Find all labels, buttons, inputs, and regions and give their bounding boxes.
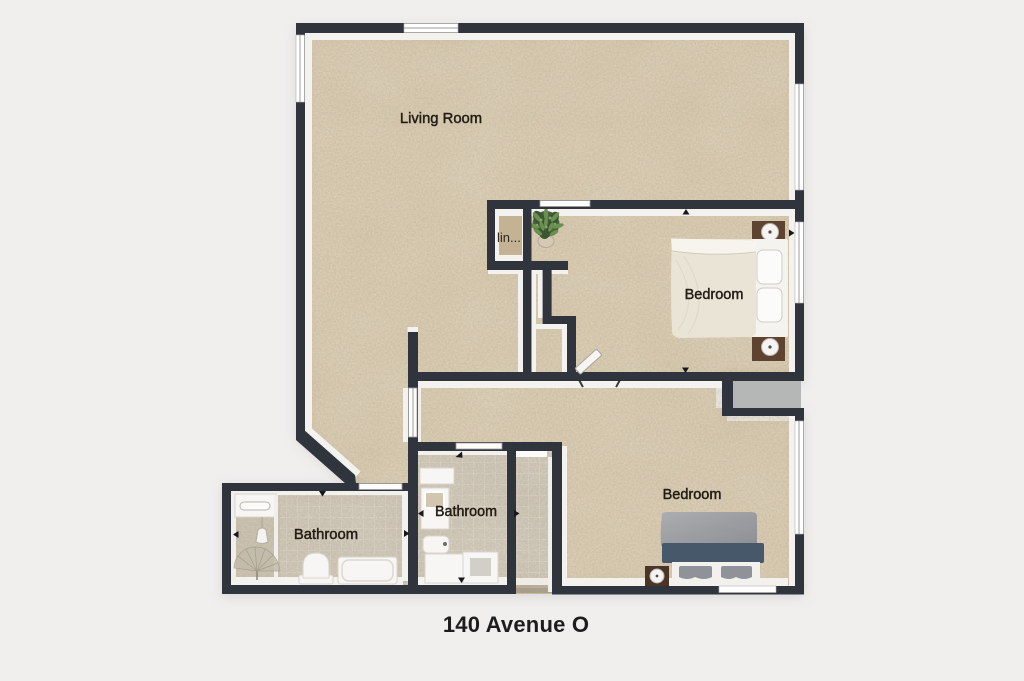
svg-text:lin...: lin... bbox=[497, 230, 521, 245]
svg-text:Bathroom: Bathroom bbox=[435, 504, 497, 520]
svg-text:Bedroom: Bedroom bbox=[663, 487, 722, 503]
svg-text:Living Room: Living Room bbox=[400, 111, 482, 127]
svg-text:Bedroom: Bedroom bbox=[685, 287, 744, 303]
svg-text:140 Avenue O: 140 Avenue O bbox=[443, 612, 589, 637]
svg-text:Bathroom: Bathroom bbox=[294, 527, 358, 543]
